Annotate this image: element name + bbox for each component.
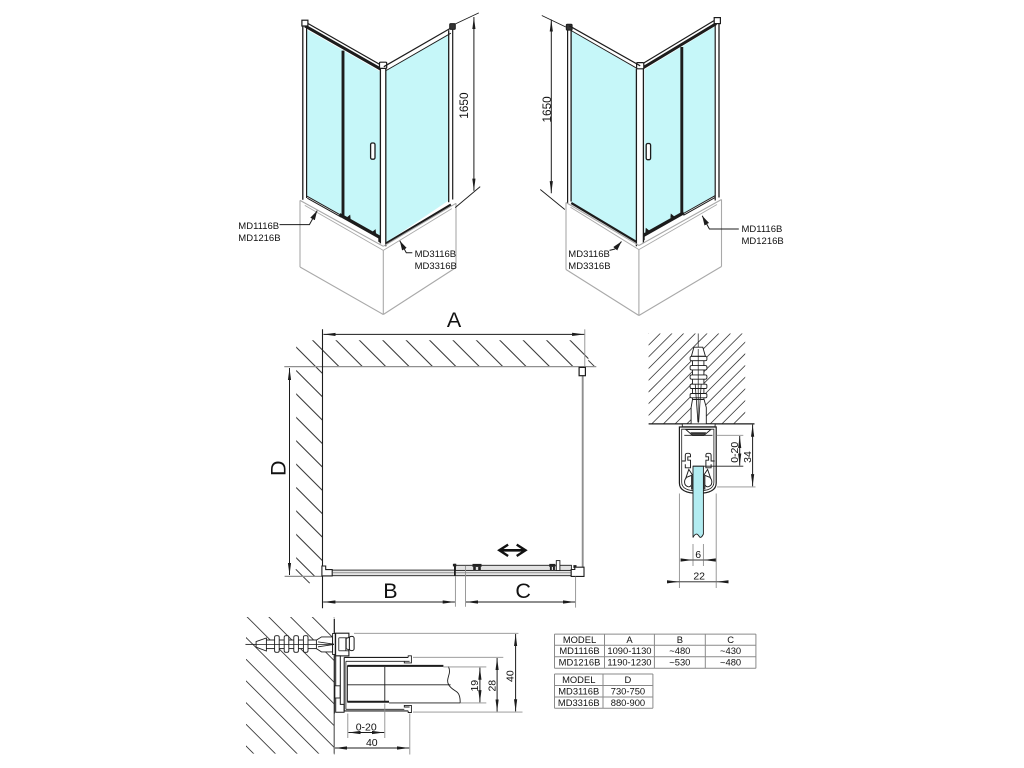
svg-text:MD3316B: MD3316B [568,261,610,272]
svg-text:B: B [677,634,683,645]
svg-text:MODEL: MODEL [563,634,596,645]
svg-text:0-20: 0-20 [729,442,741,463]
svg-text:C: C [515,579,531,603]
svg-text:1650: 1650 [457,92,471,119]
svg-text:MD1116B: MD1116B [742,224,783,235]
svg-text:MD1216B: MD1216B [742,236,784,247]
svg-text:~530: ~530 [669,657,690,668]
svg-text:MD1116B: MD1116B [238,221,279,232]
svg-text:A: A [447,308,462,332]
svg-text:A: A [626,634,633,645]
svg-text:MD3116B: MD3116B [415,249,457,260]
svg-text:~430: ~430 [720,645,741,656]
svg-text:28: 28 [486,680,498,692]
svg-text:1090-1130: 1090-1130 [607,645,651,656]
svg-text:D: D [266,460,290,476]
svg-text:MD3116B: MD3116B [568,249,610,260]
svg-text:0-20: 0-20 [356,722,377,734]
svg-text:D: D [625,674,632,685]
svg-text:C: C [727,634,734,645]
svg-text:6: 6 [695,549,701,561]
svg-text:1650: 1650 [540,96,554,123]
svg-text:40: 40 [366,737,378,749]
svg-text:22: 22 [693,570,705,582]
svg-text:730-750: 730-750 [611,685,645,696]
svg-text:~480: ~480 [720,657,741,668]
svg-text:34: 34 [742,451,754,463]
svg-text:B: B [383,579,397,603]
svg-text:MD3116B: MD3116B [558,685,599,696]
svg-text:MODEL: MODEL [562,674,595,685]
svg-text:~480: ~480 [669,645,690,656]
svg-text:MD1116B: MD1116B [559,645,599,656]
svg-text:MD3316B: MD3316B [415,261,457,272]
svg-text:40: 40 [505,670,517,682]
svg-text:1190-1230: 1190-1230 [607,657,651,668]
svg-text:880-900: 880-900 [611,697,645,708]
svg-text:19: 19 [469,680,481,692]
svg-text:MD1216B: MD1216B [559,657,601,668]
svg-text:MD3316B: MD3316B [558,697,600,708]
svg-text:MD1216B: MD1216B [238,233,280,244]
